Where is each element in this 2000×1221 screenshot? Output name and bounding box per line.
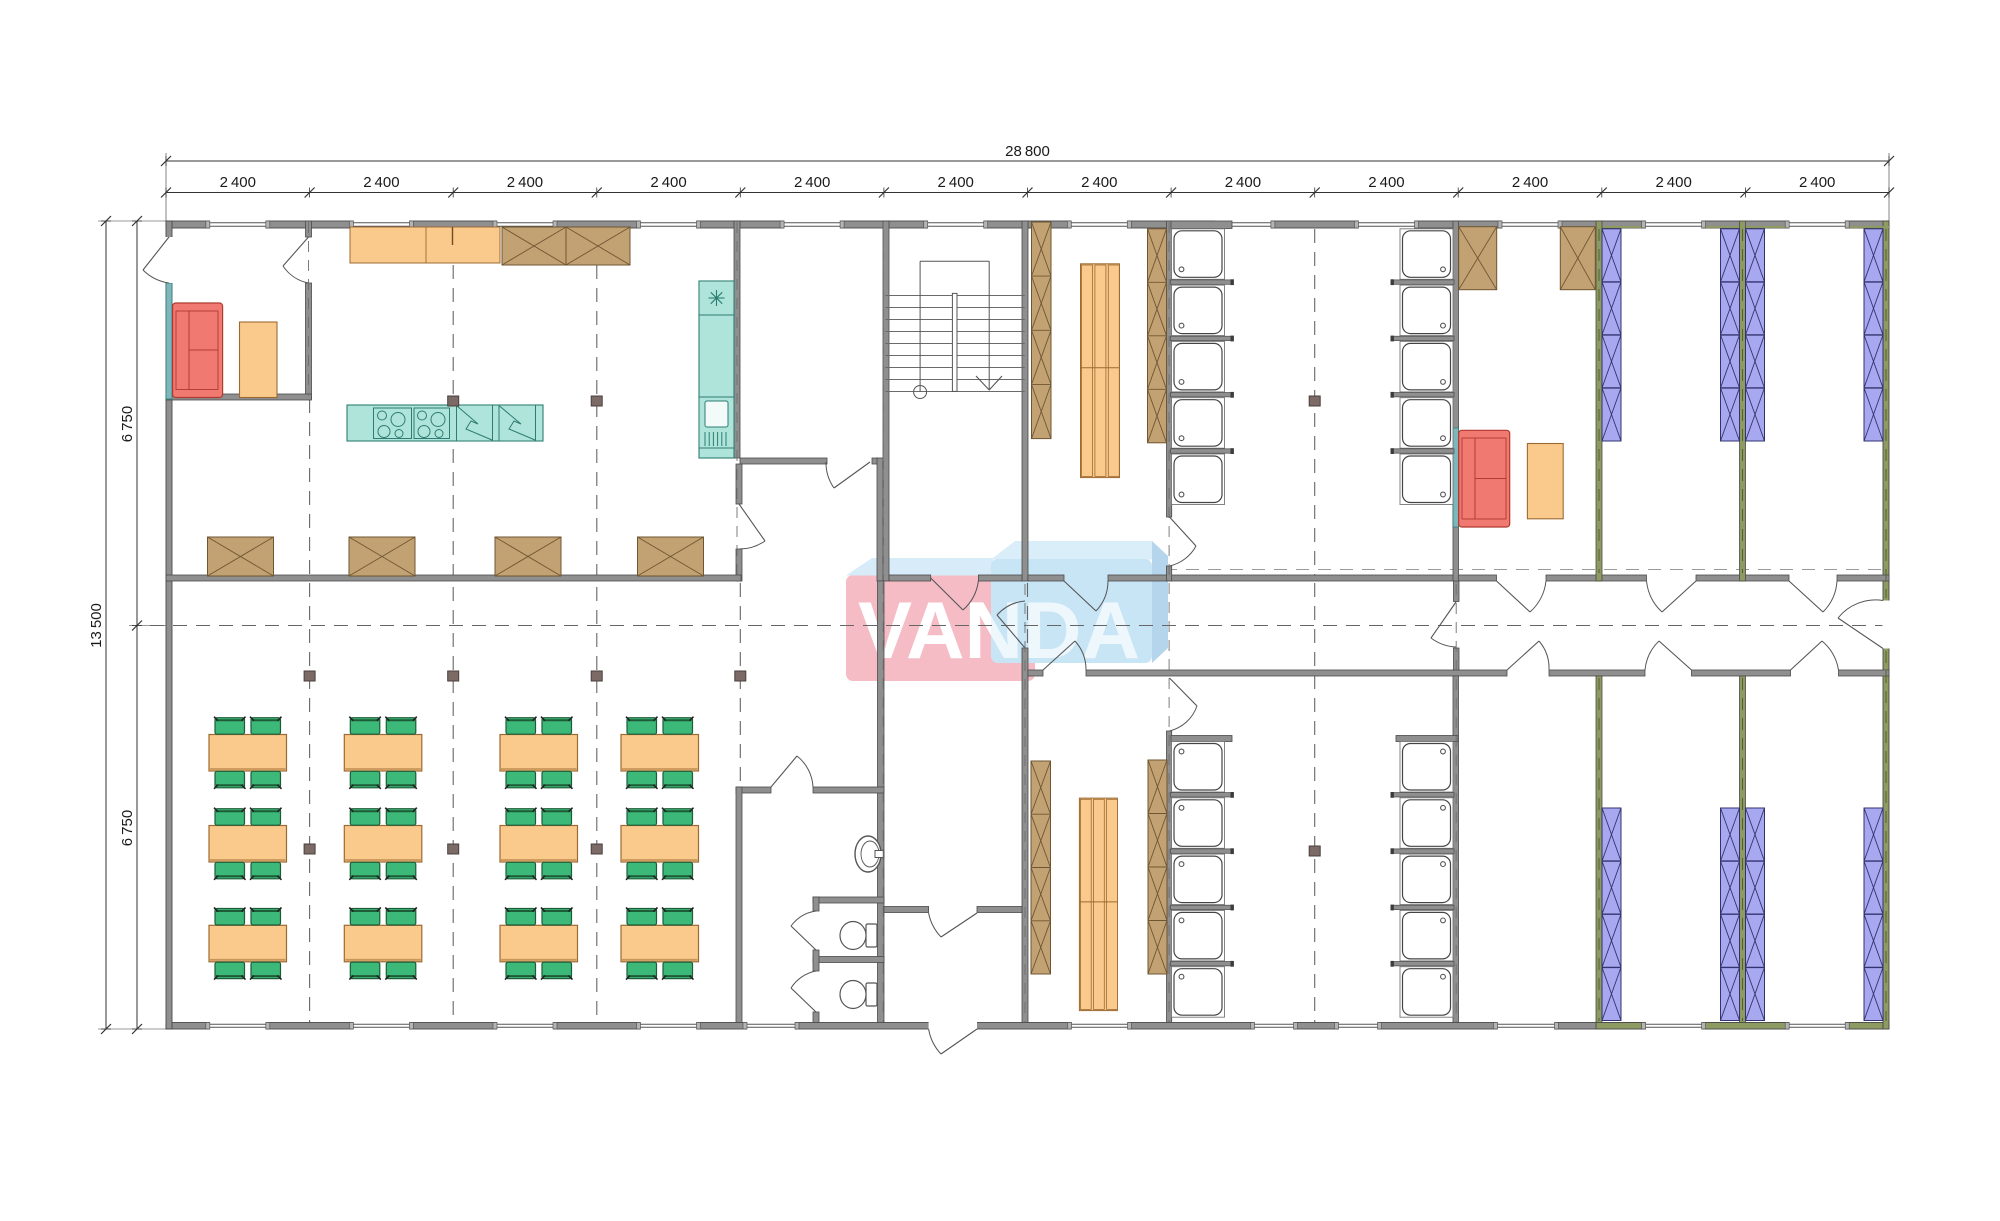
svg-text:2 400: 2 400 — [220, 174, 256, 191]
svg-text:28 800: 28 800 — [1005, 143, 1050, 160]
svg-text:2 400: 2 400 — [794, 174, 830, 191]
svg-text:2 400: 2 400 — [1655, 174, 1691, 191]
svg-text:2 400: 2 400 — [938, 174, 974, 191]
svg-text:2 400: 2 400 — [1081, 174, 1117, 191]
svg-text:2 400: 2 400 — [1368, 174, 1404, 191]
svg-text:2 400: 2 400 — [1225, 174, 1261, 191]
svg-text:2 400: 2 400 — [650, 174, 686, 191]
svg-text:13 500: 13 500 — [88, 603, 105, 648]
svg-text:6 750: 6 750 — [119, 810, 136, 846]
svg-text:2 400: 2 400 — [363, 174, 399, 191]
svg-text:6 750: 6 750 — [119, 406, 136, 442]
svg-text:2 400: 2 400 — [507, 174, 543, 191]
svg-text:2 400: 2 400 — [1799, 174, 1835, 191]
svg-text:2 400: 2 400 — [1512, 174, 1548, 191]
